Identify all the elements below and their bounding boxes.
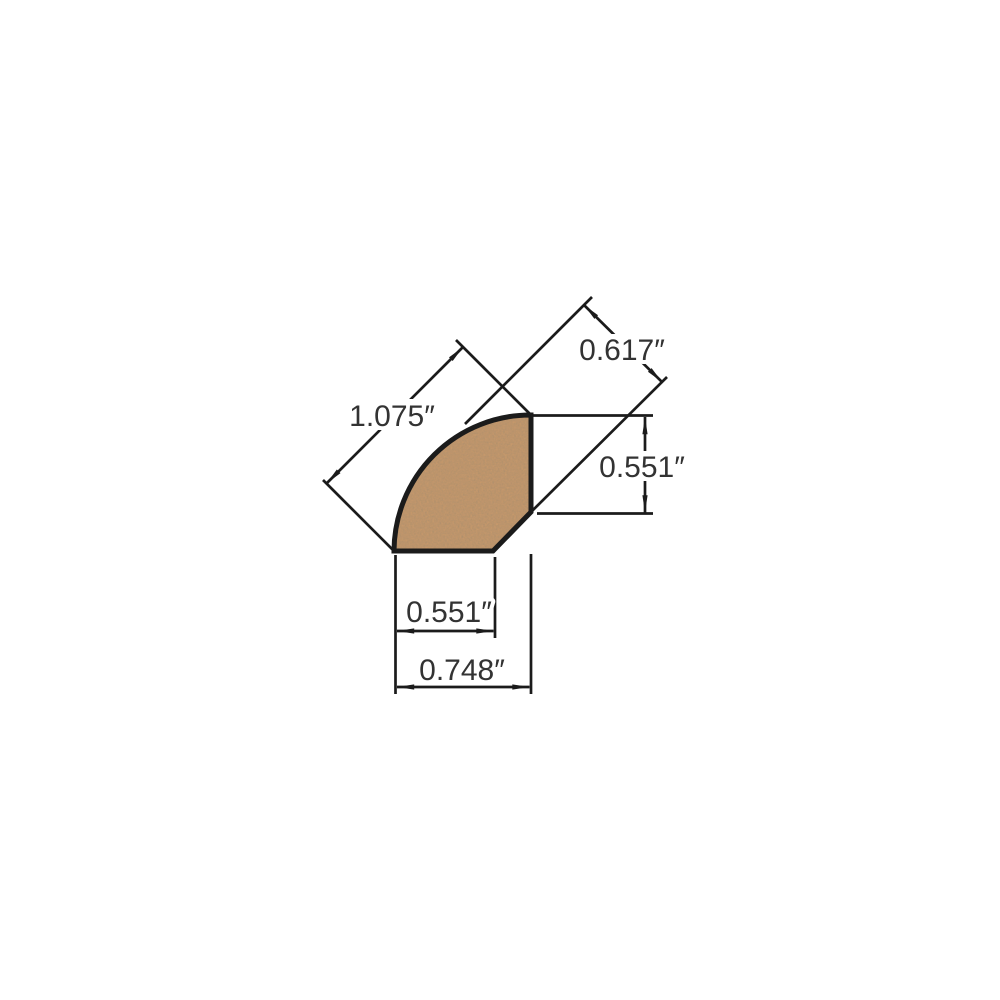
extension-line-arc-tangent	[465, 297, 592, 424]
diagram-canvas: 1.075″ 0.617″ 0.551″ 0.551″ 0.748″	[0, 0, 1000, 1000]
extension-line-diagonal-top-corner	[456, 340, 531, 415]
dim-label-diagonal-thickness: 0.617″	[579, 334, 665, 367]
dim-label-bottom-width: 0.551″	[406, 596, 492, 629]
extension-line-diagonal-bottom-left	[323, 480, 394, 551]
dim-label-overall-width: 0.748″	[419, 654, 505, 687]
dim-label-side-height: 0.551″	[599, 451, 685, 484]
dim-label-diagonal-width: 1.075″	[349, 400, 435, 433]
extension-line-chamfer-corner	[531, 377, 667, 512]
molding-dimension-diagram: 1.075″ 0.617″ 0.551″ 0.551″ 0.748″	[0, 0, 1000, 1000]
